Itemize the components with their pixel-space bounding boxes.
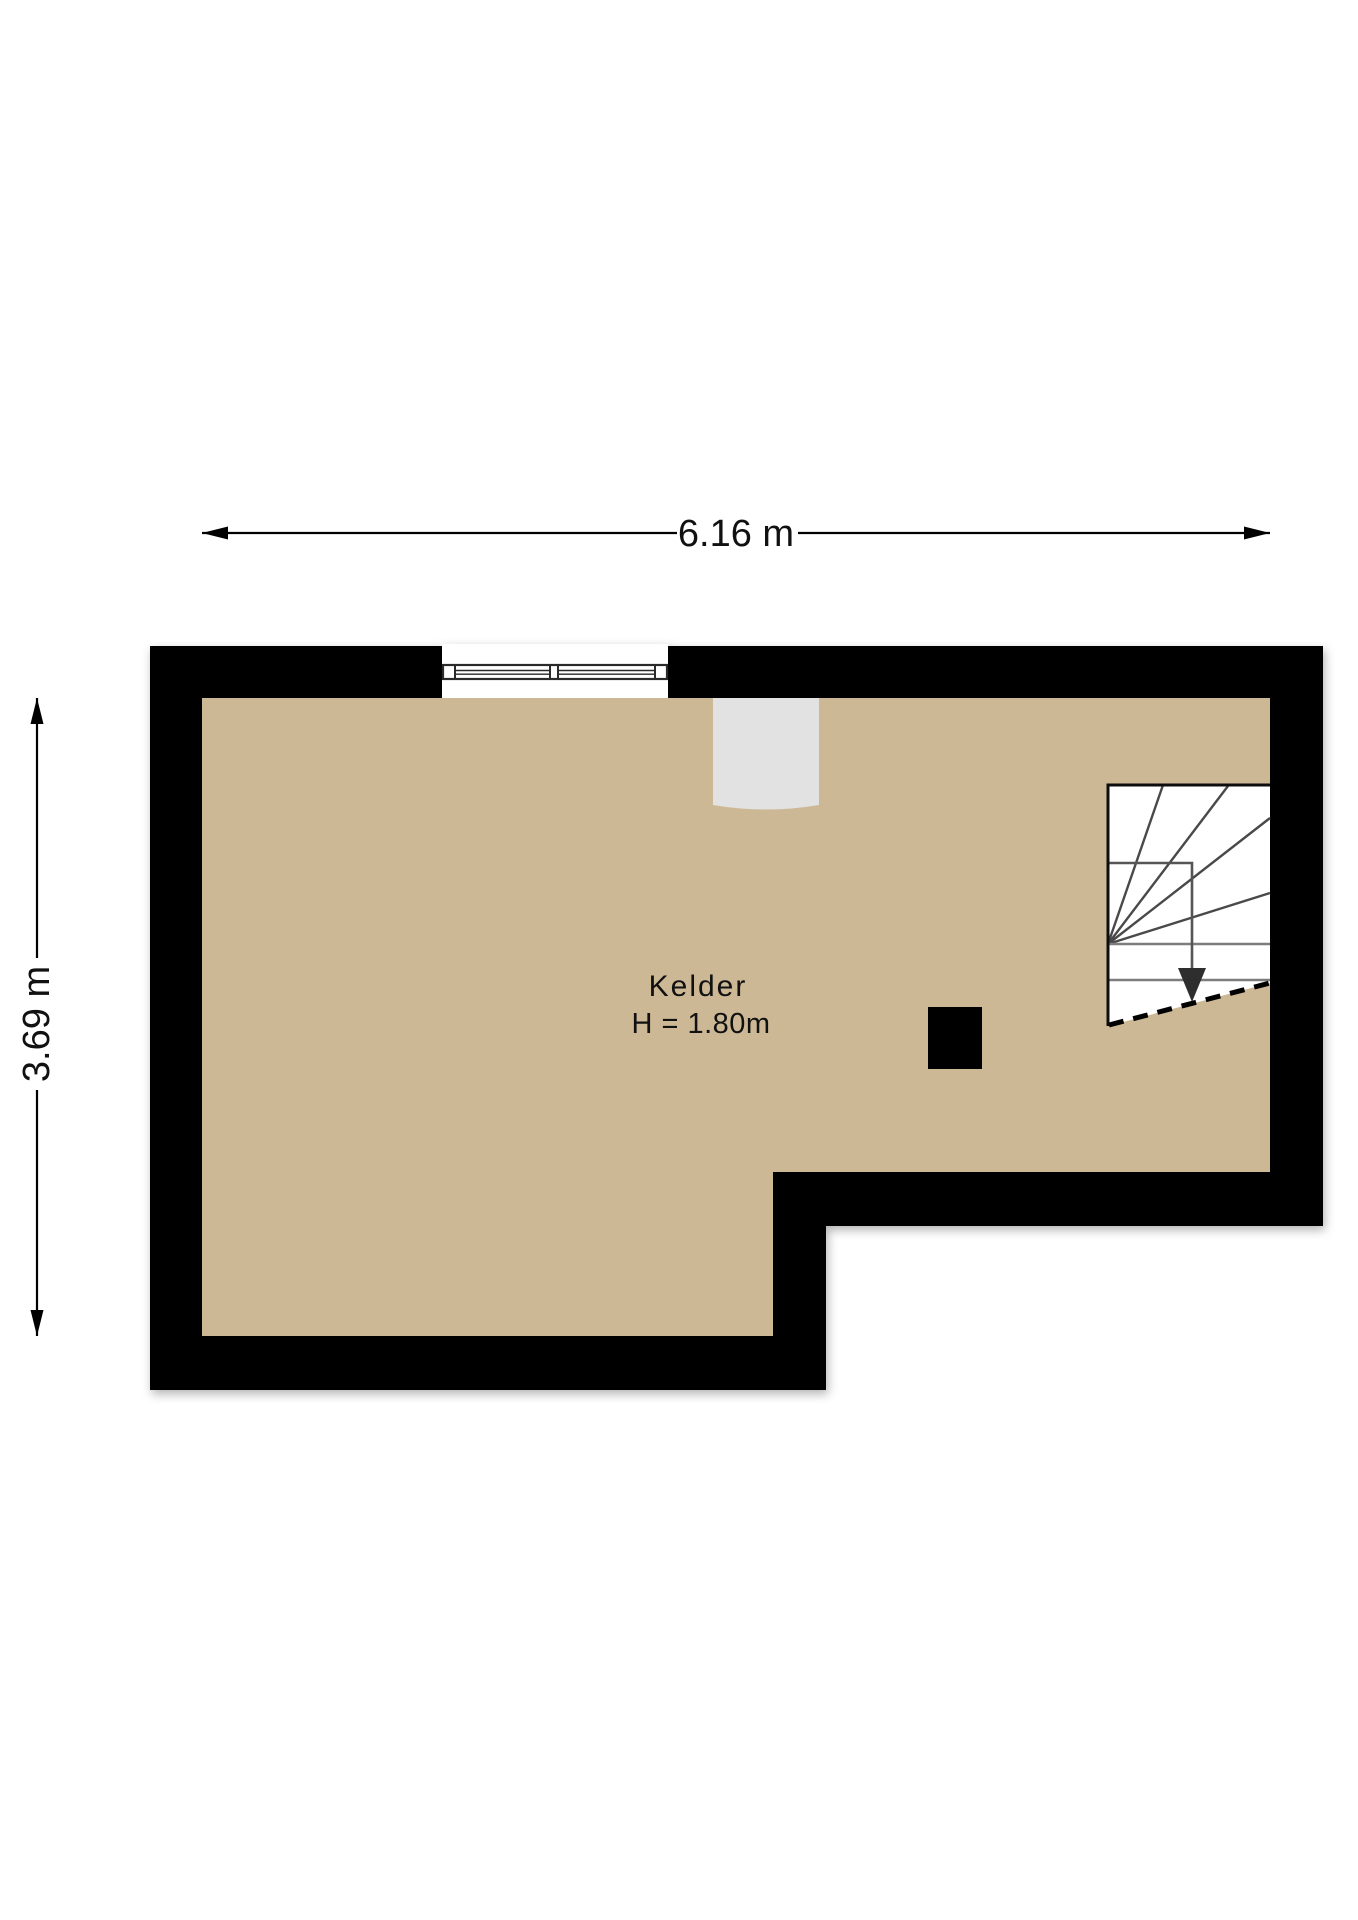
width-dimension: 6.16 m [202, 513, 1270, 555]
window-frame [443, 665, 667, 679]
window [442, 644, 668, 698]
arrow-up-icon [31, 698, 44, 724]
arrow-right-icon [1244, 527, 1270, 540]
room-ceiling-height: H = 1.80m [631, 1008, 770, 1040]
floorplan-canvas: 6.16 m 3.69 m [0, 0, 1358, 1920]
column [928, 1007, 982, 1069]
height-dimension-label: 3.69 m [16, 966, 58, 1082]
room-name: Kelder [649, 970, 748, 1003]
arrow-down-icon [31, 1310, 44, 1336]
floorplan-svg: 6.16 m 3.69 m [0, 0, 1358, 1920]
height-dimension: 3.69 m [16, 698, 58, 1336]
width-dimension-label: 6.16 m [678, 513, 794, 555]
arrow-left-icon [202, 527, 228, 540]
niche [713, 698, 819, 810]
